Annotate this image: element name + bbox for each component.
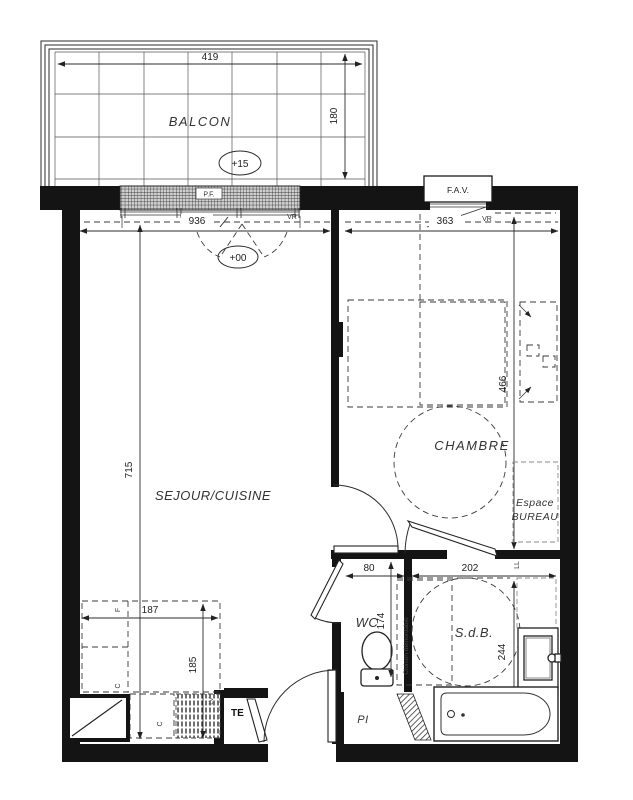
- chambre-door-swing: [334, 485, 398, 549]
- dishwasher-label: LV: [208, 697, 215, 705]
- dim-balcon-width: 419: [202, 52, 219, 63]
- chambre: CHAMBRE 466 Espace BUREAU: [334, 214, 558, 553]
- bed-mattress: [420, 302, 505, 405]
- kitchen: F C C LV 187 185: [68, 601, 220, 740]
- wall-top-middle: [300, 186, 424, 210]
- sejour-cuisine: SEJOUR/CUISINE +00 715 F C C LV 187 185: [68, 224, 336, 742]
- dim-sdb-width: 202: [462, 563, 479, 574]
- floor-plan: BALCON +15 419 180 P.F.: [0, 0, 633, 800]
- dim-sejour-width: 936: [189, 216, 206, 227]
- wall-top-left: [40, 186, 120, 210]
- level-marker-sejour: +00: [230, 253, 247, 264]
- fridge-label: F: [115, 608, 122, 612]
- wall-hall-sdb-right: [495, 550, 560, 559]
- turning-circle-chambre: [394, 406, 506, 518]
- dim-chambre-depth: 466: [498, 375, 509, 392]
- room-label-sejour: SEJOUR/CUISINE: [155, 488, 271, 503]
- bed: [348, 300, 507, 407]
- wall-left: [62, 210, 80, 762]
- room-label-sdb: S.d.B.: [455, 625, 493, 640]
- room-label-chambre: CHAMBRE: [434, 438, 510, 453]
- bathtub: [434, 687, 558, 741]
- toilet-button: [375, 676, 379, 680]
- dim-wc-depth: 174: [376, 612, 387, 629]
- washing-machine: LL: [514, 561, 556, 628]
- vanity-sink: [518, 628, 561, 688]
- bathtub-drain: [461, 713, 465, 717]
- wall-bottom-left: [62, 744, 268, 762]
- ll-label: LL: [514, 561, 521, 569]
- pi-label: PI: [357, 714, 368, 726]
- dim-kitchen-depth: 185: [188, 656, 199, 673]
- dim-balcon-depth: 180: [329, 107, 340, 124]
- toilet-bowl: [362, 632, 392, 670]
- dim-wc-width: 80: [363, 563, 375, 574]
- hob-label: C: [115, 683, 122, 688]
- wc-door-leaf: [311, 560, 343, 619]
- wall-bottom-right: [336, 744, 578, 762]
- pi-folding-door: [397, 694, 431, 740]
- sdb-door-swing: [405, 524, 410, 553]
- dim-kitchen-width: 187: [142, 605, 159, 616]
- pf-label: P.F.: [203, 192, 214, 199]
- wall-te-stub: [224, 688, 268, 698]
- oven-label: C: [157, 721, 164, 726]
- duct-shaft: [331, 322, 343, 357]
- vr-label-sejour: VR: [287, 214, 297, 221]
- espace-bureau-label-1: Espace: [516, 497, 554, 509]
- wall-right: [560, 210, 578, 762]
- dim-sdb-depth: 244: [497, 643, 508, 660]
- room-label-balcon: BALCON: [169, 114, 231, 129]
- espace-bureau: Espace BUREAU: [512, 462, 559, 542]
- espace-bureau-label-2: BUREAU: [512, 511, 559, 523]
- pi-closet: PI: [357, 694, 431, 740]
- cloison-demontable-label: Cloison démontable: [403, 617, 410, 675]
- balcony: BALCON +15 419 180: [41, 41, 377, 188]
- chambre-door-leaf: [334, 546, 398, 553]
- entry-door-leaf: [328, 670, 336, 742]
- wardrobe: [519, 302, 557, 402]
- entry-door-swing: [264, 670, 336, 742]
- entry-area: TE: [231, 670, 336, 742]
- dim-sejour-depth: 715: [124, 461, 135, 478]
- fav-label: F.A.V.: [447, 185, 469, 195]
- floor-plan-sheet: BALCON +15 419 180 P.F.: [0, 0, 633, 800]
- dim-chambre-width: 363: [437, 216, 454, 227]
- level-marker-balcon: +15: [232, 159, 249, 170]
- wall-top-right: [492, 186, 578, 210]
- te-label: TE: [231, 708, 244, 719]
